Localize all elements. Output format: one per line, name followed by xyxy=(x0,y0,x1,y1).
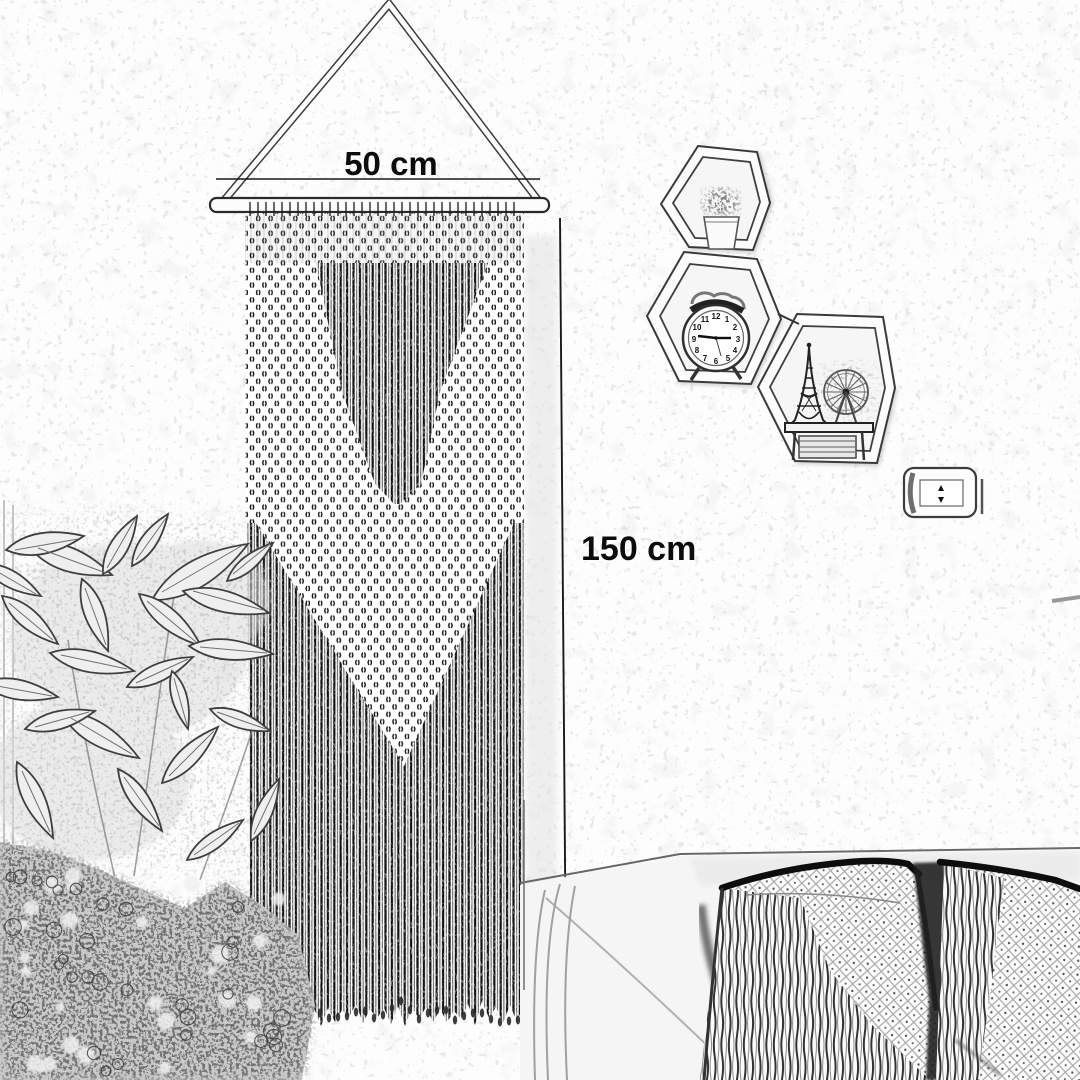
svg-text:9: 9 xyxy=(692,335,697,344)
svg-text:6: 6 xyxy=(714,357,719,366)
svg-text:4: 4 xyxy=(733,346,738,355)
svg-text:12: 12 xyxy=(712,312,721,321)
svg-text:8: 8 xyxy=(695,346,700,355)
svg-text:11: 11 xyxy=(701,315,710,324)
svg-text:1: 1 xyxy=(725,315,730,324)
svg-text:5: 5 xyxy=(726,354,731,363)
svg-text:2: 2 xyxy=(733,323,738,332)
svg-text:150 cm: 150 cm xyxy=(581,530,696,568)
svg-text:50 cm: 50 cm xyxy=(344,145,438,182)
svg-text:10: 10 xyxy=(693,323,702,332)
svg-text:7: 7 xyxy=(703,354,708,363)
svg-text:3: 3 xyxy=(736,335,741,344)
